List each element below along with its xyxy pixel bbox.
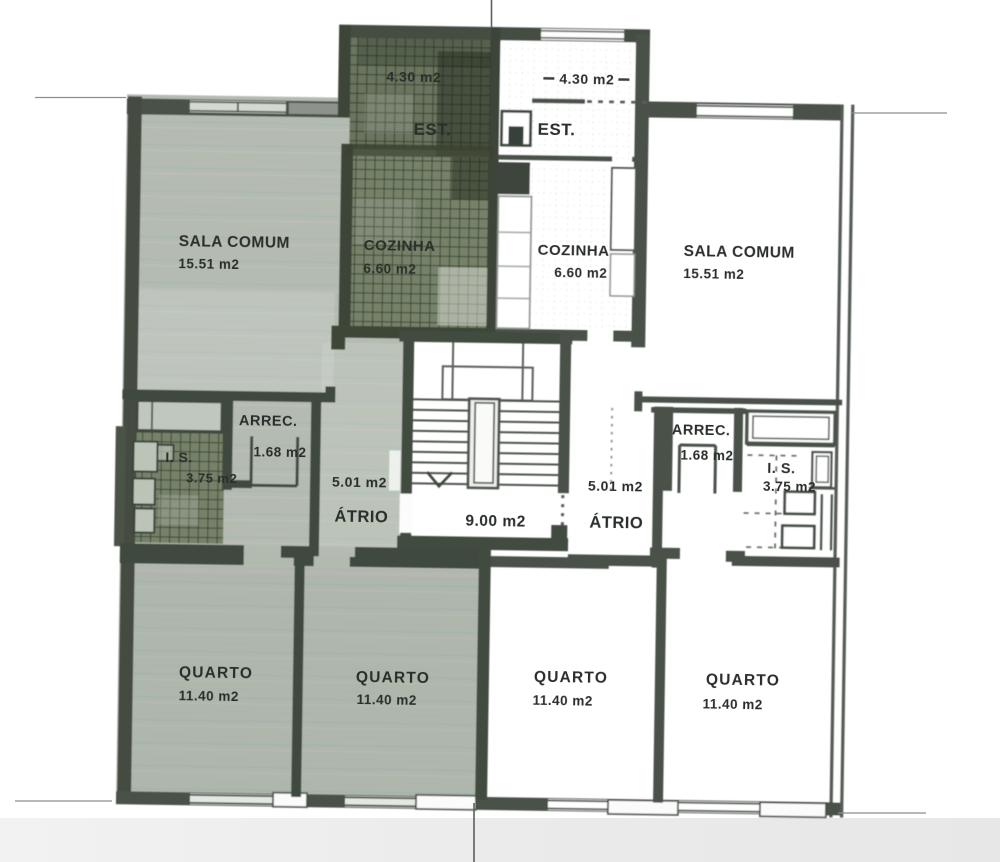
svg-text:5.01 m2: 5.01 m2 <box>332 474 387 491</box>
svg-text:1.68 m2: 1.68 m2 <box>680 447 733 463</box>
svg-text:SALA COMUM: SALA COMUM <box>684 243 795 262</box>
svg-text:SALA COMUM: SALA COMUM <box>179 233 290 252</box>
svg-text:4.30 m2: 4.30 m2 <box>559 71 614 88</box>
svg-text:ÁTRIO: ÁTRIO <box>334 507 388 527</box>
svg-text:ARREC.: ARREC. <box>672 422 731 439</box>
svg-text:EST.: EST. <box>537 120 575 140</box>
svg-text:11.40 m2: 11.40 m2 <box>532 693 593 709</box>
svg-text:15.51 m2: 15.51 m2 <box>178 256 239 272</box>
svg-text:1.68 m2: 1.68 m2 <box>253 444 306 460</box>
svg-text:COZINHA: COZINHA <box>364 237 436 255</box>
svg-text:15.51 m2: 15.51 m2 <box>683 266 744 282</box>
svg-text:6.60 m2: 6.60 m2 <box>363 261 416 277</box>
svg-text:COZINHA: COZINHA <box>538 242 610 260</box>
svg-text:QUARTO: QUARTO <box>356 669 430 687</box>
svg-text:QUARTO: QUARTO <box>534 669 608 687</box>
svg-text:11.40 m2: 11.40 m2 <box>702 696 763 712</box>
svg-text:9.00 m2: 9.00 m2 <box>465 513 526 531</box>
svg-text:11.40 m2: 11.40 m2 <box>179 688 240 704</box>
svg-text:I. S.: I. S. <box>767 461 796 477</box>
svg-text:I. S.: I. S. <box>165 449 193 465</box>
svg-text:3.75 m2: 3.75 m2 <box>186 470 237 486</box>
svg-text:ARREC.: ARREC. <box>239 413 298 430</box>
svg-text:3.75 m2: 3.75 m2 <box>763 479 816 495</box>
svg-text:ÁTRIO: ÁTRIO <box>589 513 643 533</box>
svg-text:QUARTO: QUARTO <box>179 664 253 682</box>
svg-text:EST.: EST. <box>413 120 451 140</box>
svg-text:5.01 m2: 5.01 m2 <box>588 478 643 495</box>
svg-text:11.40 m2: 11.40 m2 <box>356 692 417 708</box>
svg-text:6.60 m2: 6.60 m2 <box>554 265 607 281</box>
svg-text:4.30 m2: 4.30 m2 <box>386 68 441 85</box>
svg-text:QUARTO: QUARTO <box>706 671 780 689</box>
